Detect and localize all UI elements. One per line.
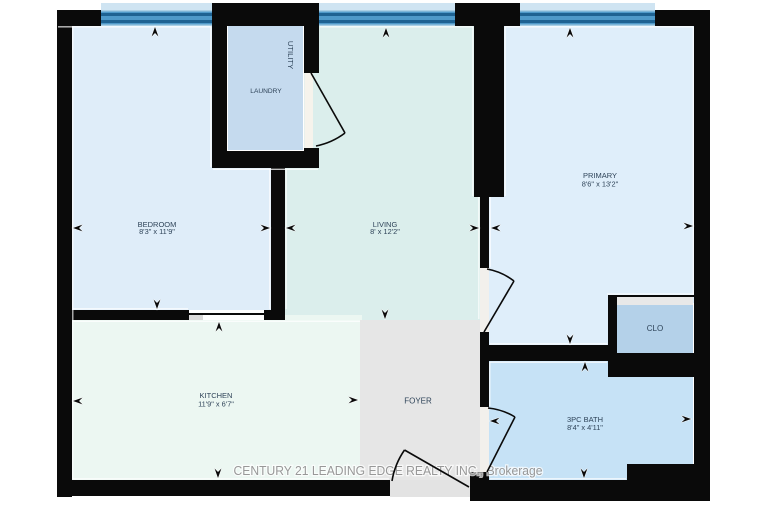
svg-text:UTILITY: UTILITY (286, 41, 295, 69)
svg-text:8'4" x 4'11": 8'4" x 4'11" (567, 423, 603, 432)
svg-text:8'6" x 13'2": 8'6" x 13'2" (582, 180, 619, 189)
svg-text:8' x 12'2": 8' x 12'2" (370, 227, 400, 236)
svg-text:FOYER: FOYER (404, 397, 432, 406)
svg-text:LAUNDRY: LAUNDRY (250, 88, 282, 95)
svg-text:CLO: CLO (647, 324, 663, 333)
svg-text:8'3" x 11'9": 8'3" x 11'9" (139, 227, 175, 236)
svg-text:11'9" x 6'7": 11'9" x 6'7" (198, 400, 234, 409)
svg-text:CENTURY 21 LEADING EDGE REALTY: CENTURY 21 LEADING EDGE REALTY INC., Bro… (234, 463, 543, 478)
